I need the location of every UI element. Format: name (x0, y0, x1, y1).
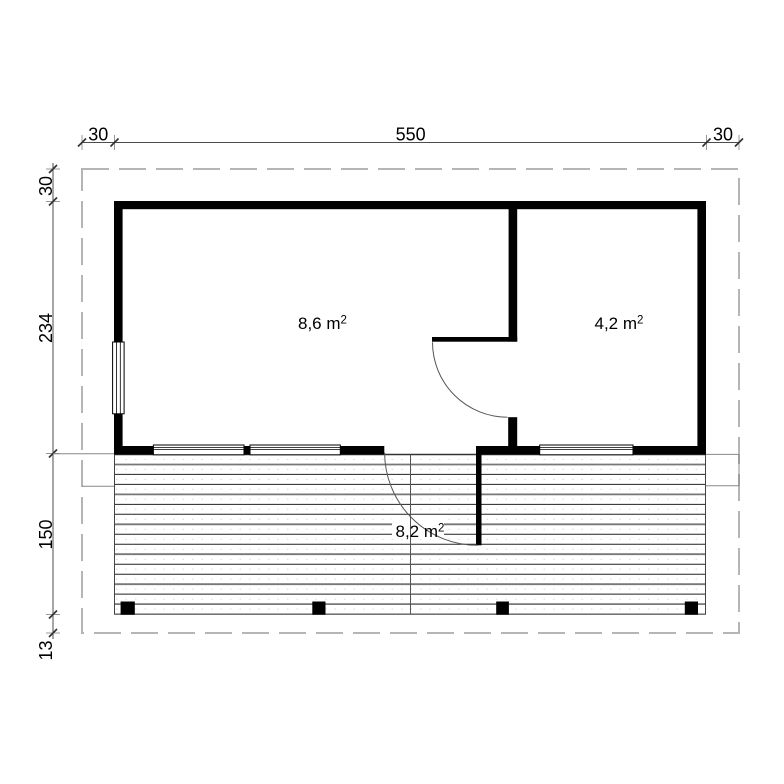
svg-text:150: 150 (36, 519, 56, 549)
svg-text:30: 30 (713, 125, 733, 145)
svg-text:550: 550 (396, 125, 426, 145)
svg-text:30: 30 (88, 125, 108, 145)
svg-text:4,2 m2: 4,2 m2 (595, 314, 644, 333)
svg-text:8,6 m2: 8,6 m2 (298, 314, 347, 333)
svg-text:234: 234 (36, 313, 56, 343)
svg-text:13: 13 (36, 640, 56, 660)
svg-text:8,2 m2: 8,2 m2 (396, 522, 445, 541)
svg-text:30: 30 (36, 176, 56, 196)
